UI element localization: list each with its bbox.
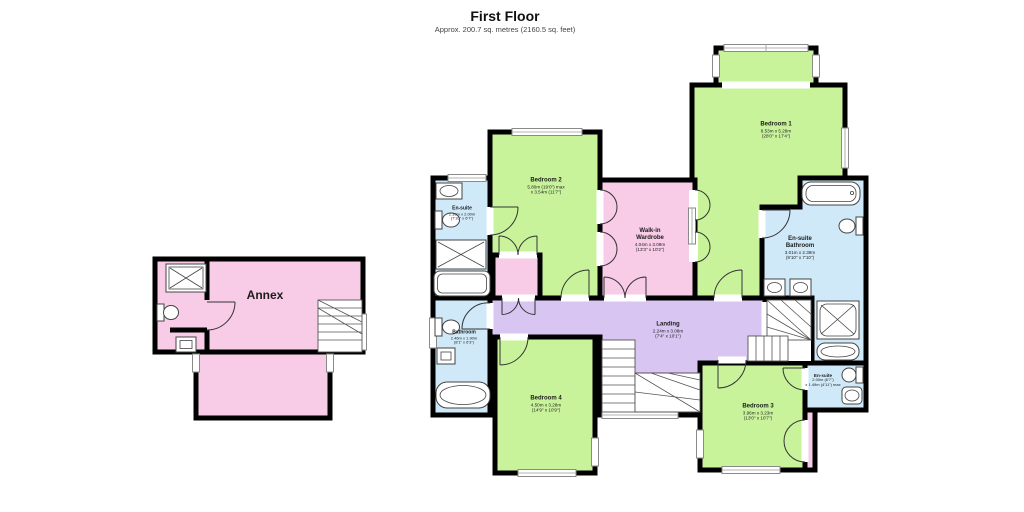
- shower-icon: [436, 240, 486, 269]
- shower-icon: [817, 301, 859, 339]
- label-walkin-wardrobe: Walk-in Wardrobe 4.04m x 3.09m (13'3" x …: [635, 228, 665, 252]
- label-bedroom-1: Bedroom 1 8.53m x 5.28m (28'0" x 17'4"): [760, 121, 791, 138]
- page-title: First Floor: [435, 8, 576, 24]
- door-opening: [561, 295, 589, 302]
- bathtub-icon: [802, 182, 860, 205]
- label-annex: Annex: [247, 289, 284, 303]
- sink-icon: [436, 183, 462, 199]
- door-opening: [597, 232, 604, 266]
- label-ensuite-bed3: En-suite 2.00m (6'7") x 1.49m (4'11") ma…: [805, 373, 840, 387]
- door-opening: [802, 420, 809, 462]
- toilet-icon: [842, 367, 863, 383]
- window: [713, 55, 720, 77]
- bathtub-icon: [436, 382, 490, 408]
- toilet-icon: [839, 217, 863, 235]
- bay-opening: [722, 82, 810, 89]
- label-bedroom-4: Bedroom 4 4.50m x 3.28m (14'9" x 10'9"): [530, 395, 561, 412]
- plan-title: First Floor Approx. 200.7 sq. metres (21…: [435, 8, 576, 34]
- window: [813, 55, 820, 77]
- label-bathroom: Bathroom 2.46m x 1.90m (8'1" x 6'3"): [451, 331, 477, 346]
- window: [697, 430, 704, 458]
- shower-icon: [166, 264, 206, 292]
- label-bedroom-2: Bedroom 2 5.80m (19'0") max x 3.54m (11'…: [527, 177, 564, 194]
- toilet-icon: [157, 304, 179, 321]
- door-opening: [487, 207, 494, 235]
- door-opening: [500, 334, 528, 341]
- annex-staircase: [318, 300, 362, 352]
- room-annex-lower: [196, 352, 330, 418]
- door-opening: [714, 295, 742, 302]
- door-opening: [597, 190, 604, 224]
- window: [592, 438, 599, 466]
- label-landing: Landing 2.24m x 3.08m (7'4" x 10'1"): [653, 321, 683, 338]
- bedroom-1-bay: [716, 48, 816, 85]
- door-opening: [718, 357, 746, 364]
- sink-icon: [790, 279, 811, 296]
- shower-icon: [842, 387, 862, 404]
- bathtub-icon: [817, 343, 859, 360]
- label-ensuite-top: En-suite 2.39m x 2.00m (7'10" x 6'7"): [449, 207, 475, 222]
- sink-icon: [764, 279, 785, 296]
- bathtub-icon: [434, 271, 490, 296]
- floor-plan-drawing: [0, 0, 1024, 512]
- floor-plan: First Floor Approx. 200.7 sq. metres (21…: [0, 0, 1024, 512]
- sink-icon: [176, 337, 196, 352]
- page-subtitle: Approx. 200.7 sq. metres (2160.5 sq. fee…: [435, 25, 576, 34]
- label-bedroom-3: Bedroom 3 3.96m x 3.23m (13'0" x 10'7"): [742, 403, 773, 420]
- door-panel: [327, 354, 334, 372]
- door-opening: [487, 303, 494, 329]
- room-dressing-alcove: [493, 255, 540, 298]
- door-panel: [193, 354, 200, 372]
- door-opening: [759, 210, 766, 238]
- sink-icon: [437, 348, 455, 364]
- label-ensuite-bathroom: En-suite Bathroom 3.01m x 2.39m (9'10" x…: [785, 236, 815, 260]
